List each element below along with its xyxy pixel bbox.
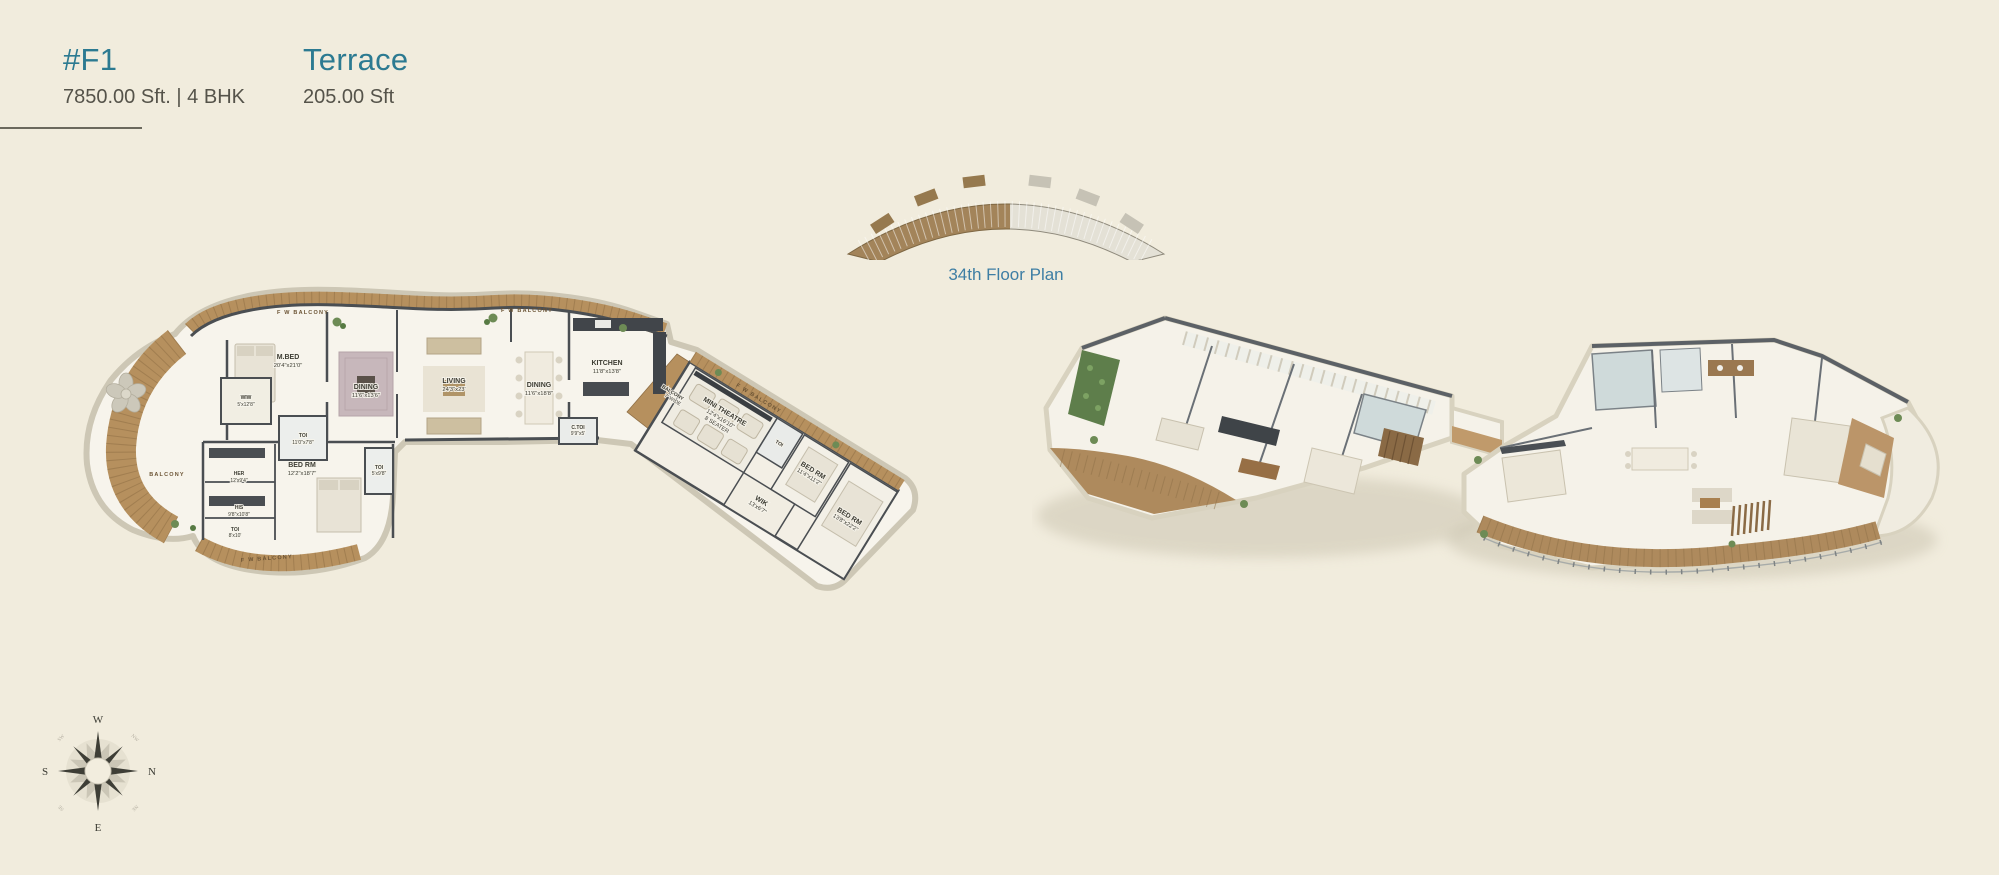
compass-left-letter: S: [42, 766, 48, 778]
terrace-details: 205.00 Sft: [303, 86, 408, 109]
room-dims: 9'8"x10'8": [228, 512, 250, 518]
room-dims: 24'3"x23': [442, 387, 465, 393]
compass-nw-letter: NW: [130, 734, 140, 744]
room-label: M.BED: [277, 354, 300, 361]
room-dims: 8'x10': [229, 533, 242, 539]
header-underline: [0, 127, 142, 129]
room-label: TOI: [299, 433, 308, 439]
terrace-header-block: Terrace 205.00 Sft: [303, 42, 408, 109]
floor-plan-2d: F W BALCONY MINI THEATRE 12'4"x16'10" 8 …: [75, 282, 930, 607]
compass-center: [85, 758, 111, 784]
compass-right-letter: N: [148, 766, 156, 778]
terrace-title: Terrace: [303, 42, 408, 78]
unit-id: #F1: [63, 42, 245, 78]
floor-plan-3d-render: [1032, 298, 1952, 598]
unit-details: 7850.00 Sft. | 4 BHK: [63, 86, 245, 109]
room-dims: 9'9"x5': [571, 431, 586, 437]
compass-rose-icon: W N E S NW NE SE SW: [36, 708, 168, 840]
balcony-label: F W BALCONY: [277, 310, 329, 316]
room-label: LIVING: [442, 378, 466, 385]
room-label: HIS: [235, 505, 244, 511]
room-dims: 11'8"x13'8": [593, 369, 621, 375]
left-balcony-label: BALCONY: [149, 472, 185, 478]
living-furniture: [423, 338, 485, 434]
unit-header-block: #F1 7850.00 Sft. | 4 BHK: [63, 42, 245, 109]
floor-plan-page: { "header": { "unit_id": "#F1", "unit_de…: [0, 0, 1999, 875]
room-label: BED RM: [288, 462, 316, 469]
key-plan[interactable]: 34th Floor Plan: [826, 152, 1186, 285]
compass-sw-letter: SW: [57, 734, 66, 743]
render-connector: [1452, 408, 1502, 456]
room-label: WIW: [241, 395, 252, 401]
compass-bottom-letter: E: [95, 822, 102, 834]
key-plan-graphic[interactable]: [826, 152, 1186, 260]
room-dims: 12'2"x18'7": [288, 471, 317, 477]
compass-ne-letter: NE: [130, 803, 138, 811]
room-dims: 11'0"x7'8": [292, 440, 314, 446]
room-label: DINING: [354, 384, 379, 391]
room-dims: 5'x12'8": [237, 402, 255, 408]
room-label: DINING: [527, 382, 552, 389]
compass-top-letter: W: [93, 714, 104, 726]
wiw-room: [221, 378, 271, 424]
room-label: KITCHEN: [591, 360, 622, 367]
room-dims: 12'x9'4": [230, 478, 248, 484]
room-dims: 11'6"x18'8": [525, 391, 553, 397]
room-dims: 20'4"x21'0": [274, 363, 303, 369]
room-label: HER: [234, 471, 245, 477]
room-dims: 11'6"x13'6": [352, 393, 380, 399]
balcony-label: F W BALCONY: [501, 308, 553, 314]
room-dims: 5'x9'8": [372, 471, 387, 477]
render-right-wing: [1464, 340, 1938, 572]
compass-se-letter: SE: [58, 804, 66, 812]
